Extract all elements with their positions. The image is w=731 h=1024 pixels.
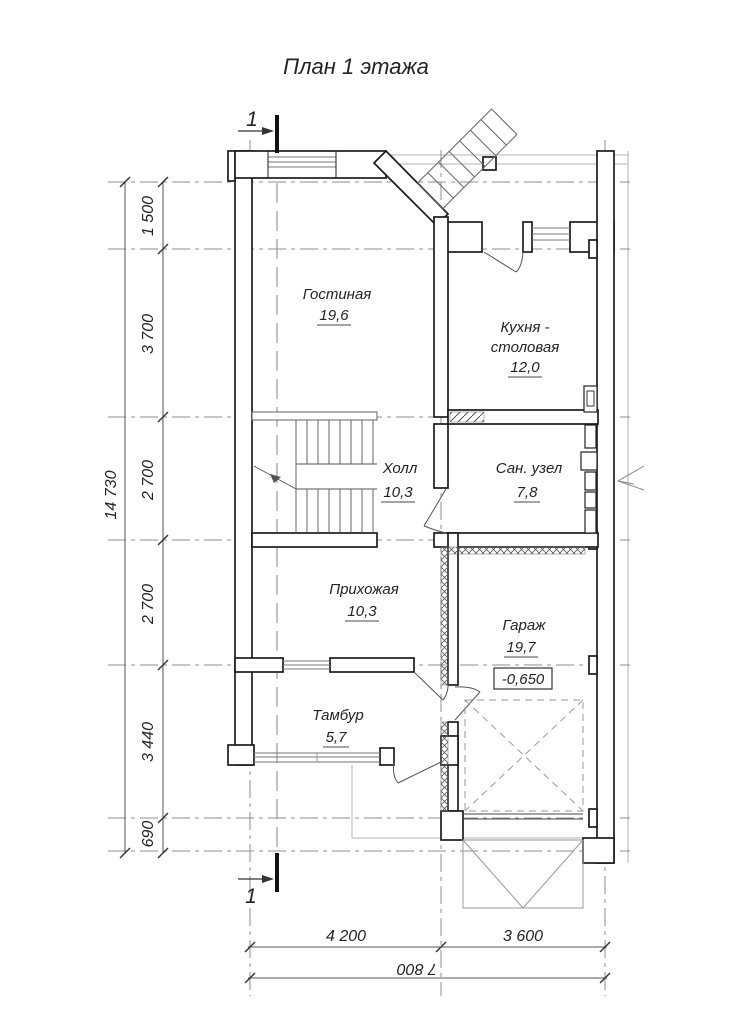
room-area-kitchen: 12,0 (510, 359, 540, 376)
section-label-top: 1 (246, 108, 258, 131)
entrance-door (482, 222, 523, 272)
dim-2700-a: 2 700 (140, 460, 157, 501)
dim-total-height: 14 730 (103, 470, 120, 519)
left-dimension-labels: 1 500 3 700 2 700 2 700 3 440 690 14 730 (103, 196, 157, 847)
bottom-dimension-labels: 4 200 3 600 7 800 (326, 928, 543, 977)
vestibule-window (254, 753, 380, 762)
room-area-bathroom: 7,8 (517, 484, 539, 501)
vestibule-exit-door (394, 762, 442, 783)
dim-3440: 3 440 (140, 722, 157, 762)
room-area-garage: 19,7 (506, 639, 536, 656)
kitchen-top-window (532, 228, 570, 240)
axis-lines (108, 140, 630, 996)
room-label-kitchen-1: Кухня - (500, 319, 549, 336)
floor-plan-sheet: -0,650 1 1 1 500 3 700 2 700 2 700 3 440… (0, 0, 731, 1024)
page-title: План 1 этажа (283, 54, 429, 79)
room-label-kitchen-2: столовая (491, 339, 560, 356)
garage-ramp (463, 840, 583, 908)
elevation-mark: -0,650 (494, 668, 552, 689)
dim-total-width: 7 800 (397, 960, 437, 977)
room-label-bathroom: Сан. узел (496, 460, 563, 477)
staircase (252, 412, 377, 533)
bathroom-door (424, 489, 446, 533)
room-area-hall: 10,3 (383, 484, 413, 501)
dim-3600: 3 600 (503, 928, 543, 945)
entry-bottom-window (283, 661, 330, 669)
room-label-hall: Холл (382, 460, 418, 477)
stair-arrow-head (270, 474, 281, 483)
vent-shafts (581, 386, 597, 533)
room-area-vestibule: 5,7 (326, 729, 348, 746)
garage-elevation-value: -0,650 (502, 671, 545, 688)
dim-1500: 1 500 (140, 196, 157, 236)
room-label-living: Гостиная (303, 286, 372, 303)
dim-4200: 4 200 (326, 928, 366, 945)
dim-690: 690 (140, 821, 157, 848)
garage-side-door (455, 687, 480, 720)
room-area-living: 19,6 (319, 307, 349, 324)
room-label-vestibule: Тамбур (312, 707, 363, 724)
garage-opening-marks (465, 700, 583, 811)
window-break-symbol (618, 466, 644, 490)
room-label-entry: Прихожая (329, 581, 399, 598)
dim-2700-b: 2 700 (140, 584, 157, 625)
section-label-bottom: 1 (245, 885, 257, 908)
porch-steps (417, 109, 517, 209)
room-area-entry: 10,3 (347, 603, 377, 620)
dim-3700: 3 700 (140, 314, 157, 354)
walls (228, 151, 614, 863)
room-label-garage: Гараж (502, 617, 546, 634)
floor-plan-drawing: -0,650 1 1 1 500 3 700 2 700 2 700 3 440… (0, 0, 731, 1024)
